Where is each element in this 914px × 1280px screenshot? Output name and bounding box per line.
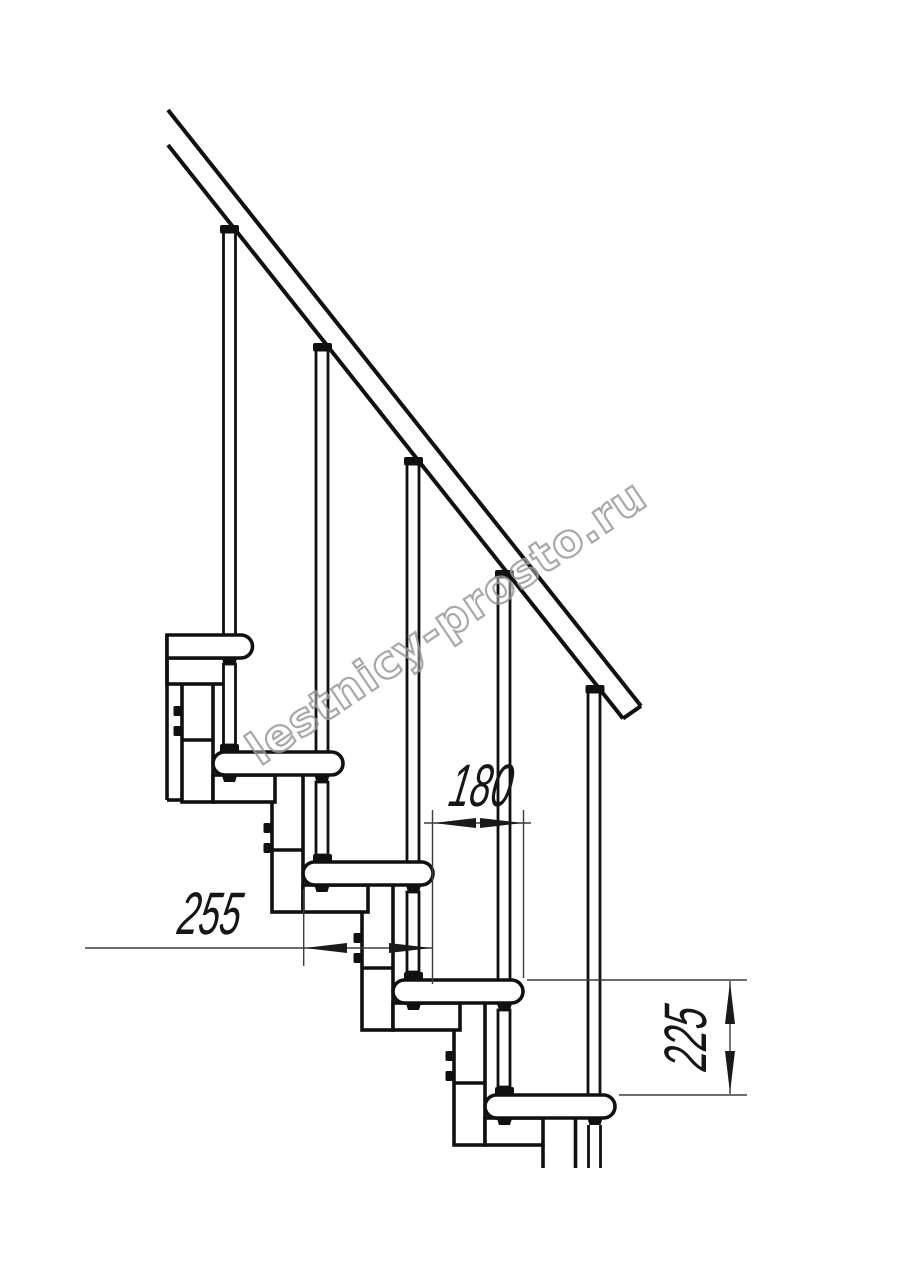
baluster-lower-tube — [224, 664, 236, 745]
arrowhead-left-icon — [434, 818, 477, 828]
column-bolt — [264, 823, 273, 833]
through-bolt-nut — [314, 884, 330, 892]
through-bolt-nut — [587, 1117, 603, 1125]
dimension-step-rise: 225 — [527, 980, 747, 1095]
through-bolt-nut — [222, 774, 238, 782]
through-bolt-nut — [406, 884, 422, 892]
dimension-step-run: 180 — [424, 751, 531, 978]
baluster-lower-tube — [498, 1010, 510, 1087]
baluster-upper-tube — [224, 230, 236, 635]
through-bolt-nut — [497, 1117, 513, 1125]
tread-clamp-5 — [485, 1118, 543, 1145]
dimension-label-180: 180 — [445, 751, 519, 819]
baluster-bottom-collar — [220, 744, 239, 753]
column-bolt — [446, 1071, 455, 1081]
column-bolt — [264, 843, 273, 853]
through-bolt-nut — [314, 774, 330, 782]
column-bolt — [446, 1051, 455, 1061]
through-bolt-nut — [406, 1002, 422, 1010]
dimension-label-225: 225 — [651, 1000, 719, 1075]
column-bolt — [174, 706, 183, 716]
technical-drawing-page: 255 180 225 lestnicy-prosto.ru — [0, 0, 914, 1280]
baluster-bottom-collar — [404, 972, 423, 981]
baluster-3 — [407, 462, 419, 972]
baluster-bottom-collar — [313, 854, 332, 863]
baluster-4 — [498, 575, 510, 1087]
through-bolt-nut — [222, 657, 238, 665]
column-bolt — [174, 726, 183, 736]
tread-clamp-2 — [213, 775, 275, 802]
arrowhead-up-icon — [725, 982, 735, 1024]
tread-4 — [393, 980, 523, 1003]
tread-5 — [485, 1095, 615, 1118]
column-bolt — [354, 953, 363, 963]
dimension-label-255: 255 — [173, 879, 248, 947]
through-bolt-nut — [497, 1002, 513, 1010]
arrowhead-down-icon — [725, 1051, 735, 1093]
handrail-end-cut — [623, 706, 641, 719]
baluster-bottom-collar — [495, 1087, 514, 1096]
baluster-lower-tube — [407, 892, 419, 972]
arrowhead-left-icon — [305, 943, 348, 953]
tread-clamp-3 — [303, 885, 368, 912]
baluster-lower-tube — [316, 782, 328, 855]
staircase-technical-drawing: 255 180 225 lestnicy-prosto.ru — [0, 0, 914, 1280]
tread-clamp-4 — [393, 1003, 460, 1030]
baluster-1 — [224, 230, 236, 745]
baluster-upper-tube — [588, 690, 600, 1095]
handrail-top-edge — [168, 110, 641, 706]
column-bolt — [354, 933, 363, 943]
tread-1 — [167, 635, 253, 658]
tread-3 — [303, 862, 433, 885]
